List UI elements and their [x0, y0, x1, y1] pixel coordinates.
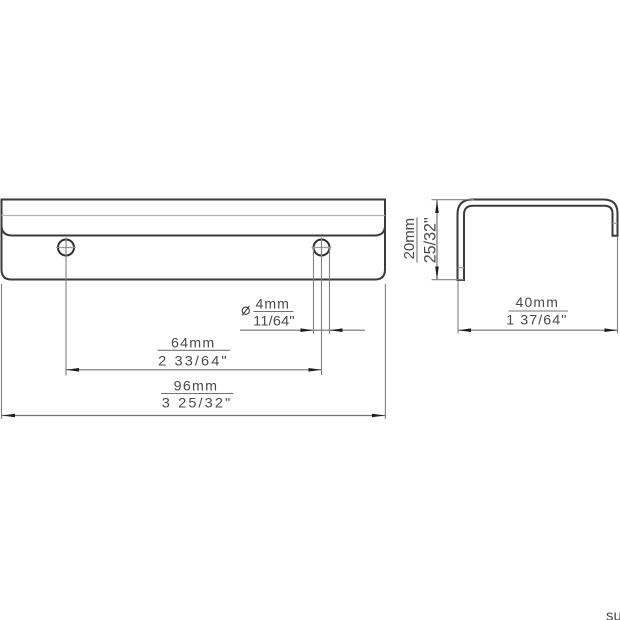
svg-text:3 25/32": 3 25/32" [162, 395, 233, 411]
svg-text:4mm: 4mm [256, 296, 291, 312]
svg-text:40mm: 40mm [516, 294, 560, 310]
svg-text:96mm: 96mm [174, 378, 219, 394]
svg-text:11/64": 11/64" [253, 312, 295, 328]
svg-text:20mm: 20mm [401, 218, 418, 260]
svg-text:su: su [606, 608, 620, 620]
svg-text:25/32": 25/32" [421, 217, 440, 263]
svg-text:1 37/64": 1 37/64" [506, 312, 567, 328]
svg-text:64mm: 64mm [171, 334, 216, 350]
svg-text:2 33/64": 2 33/64" [158, 353, 229, 369]
